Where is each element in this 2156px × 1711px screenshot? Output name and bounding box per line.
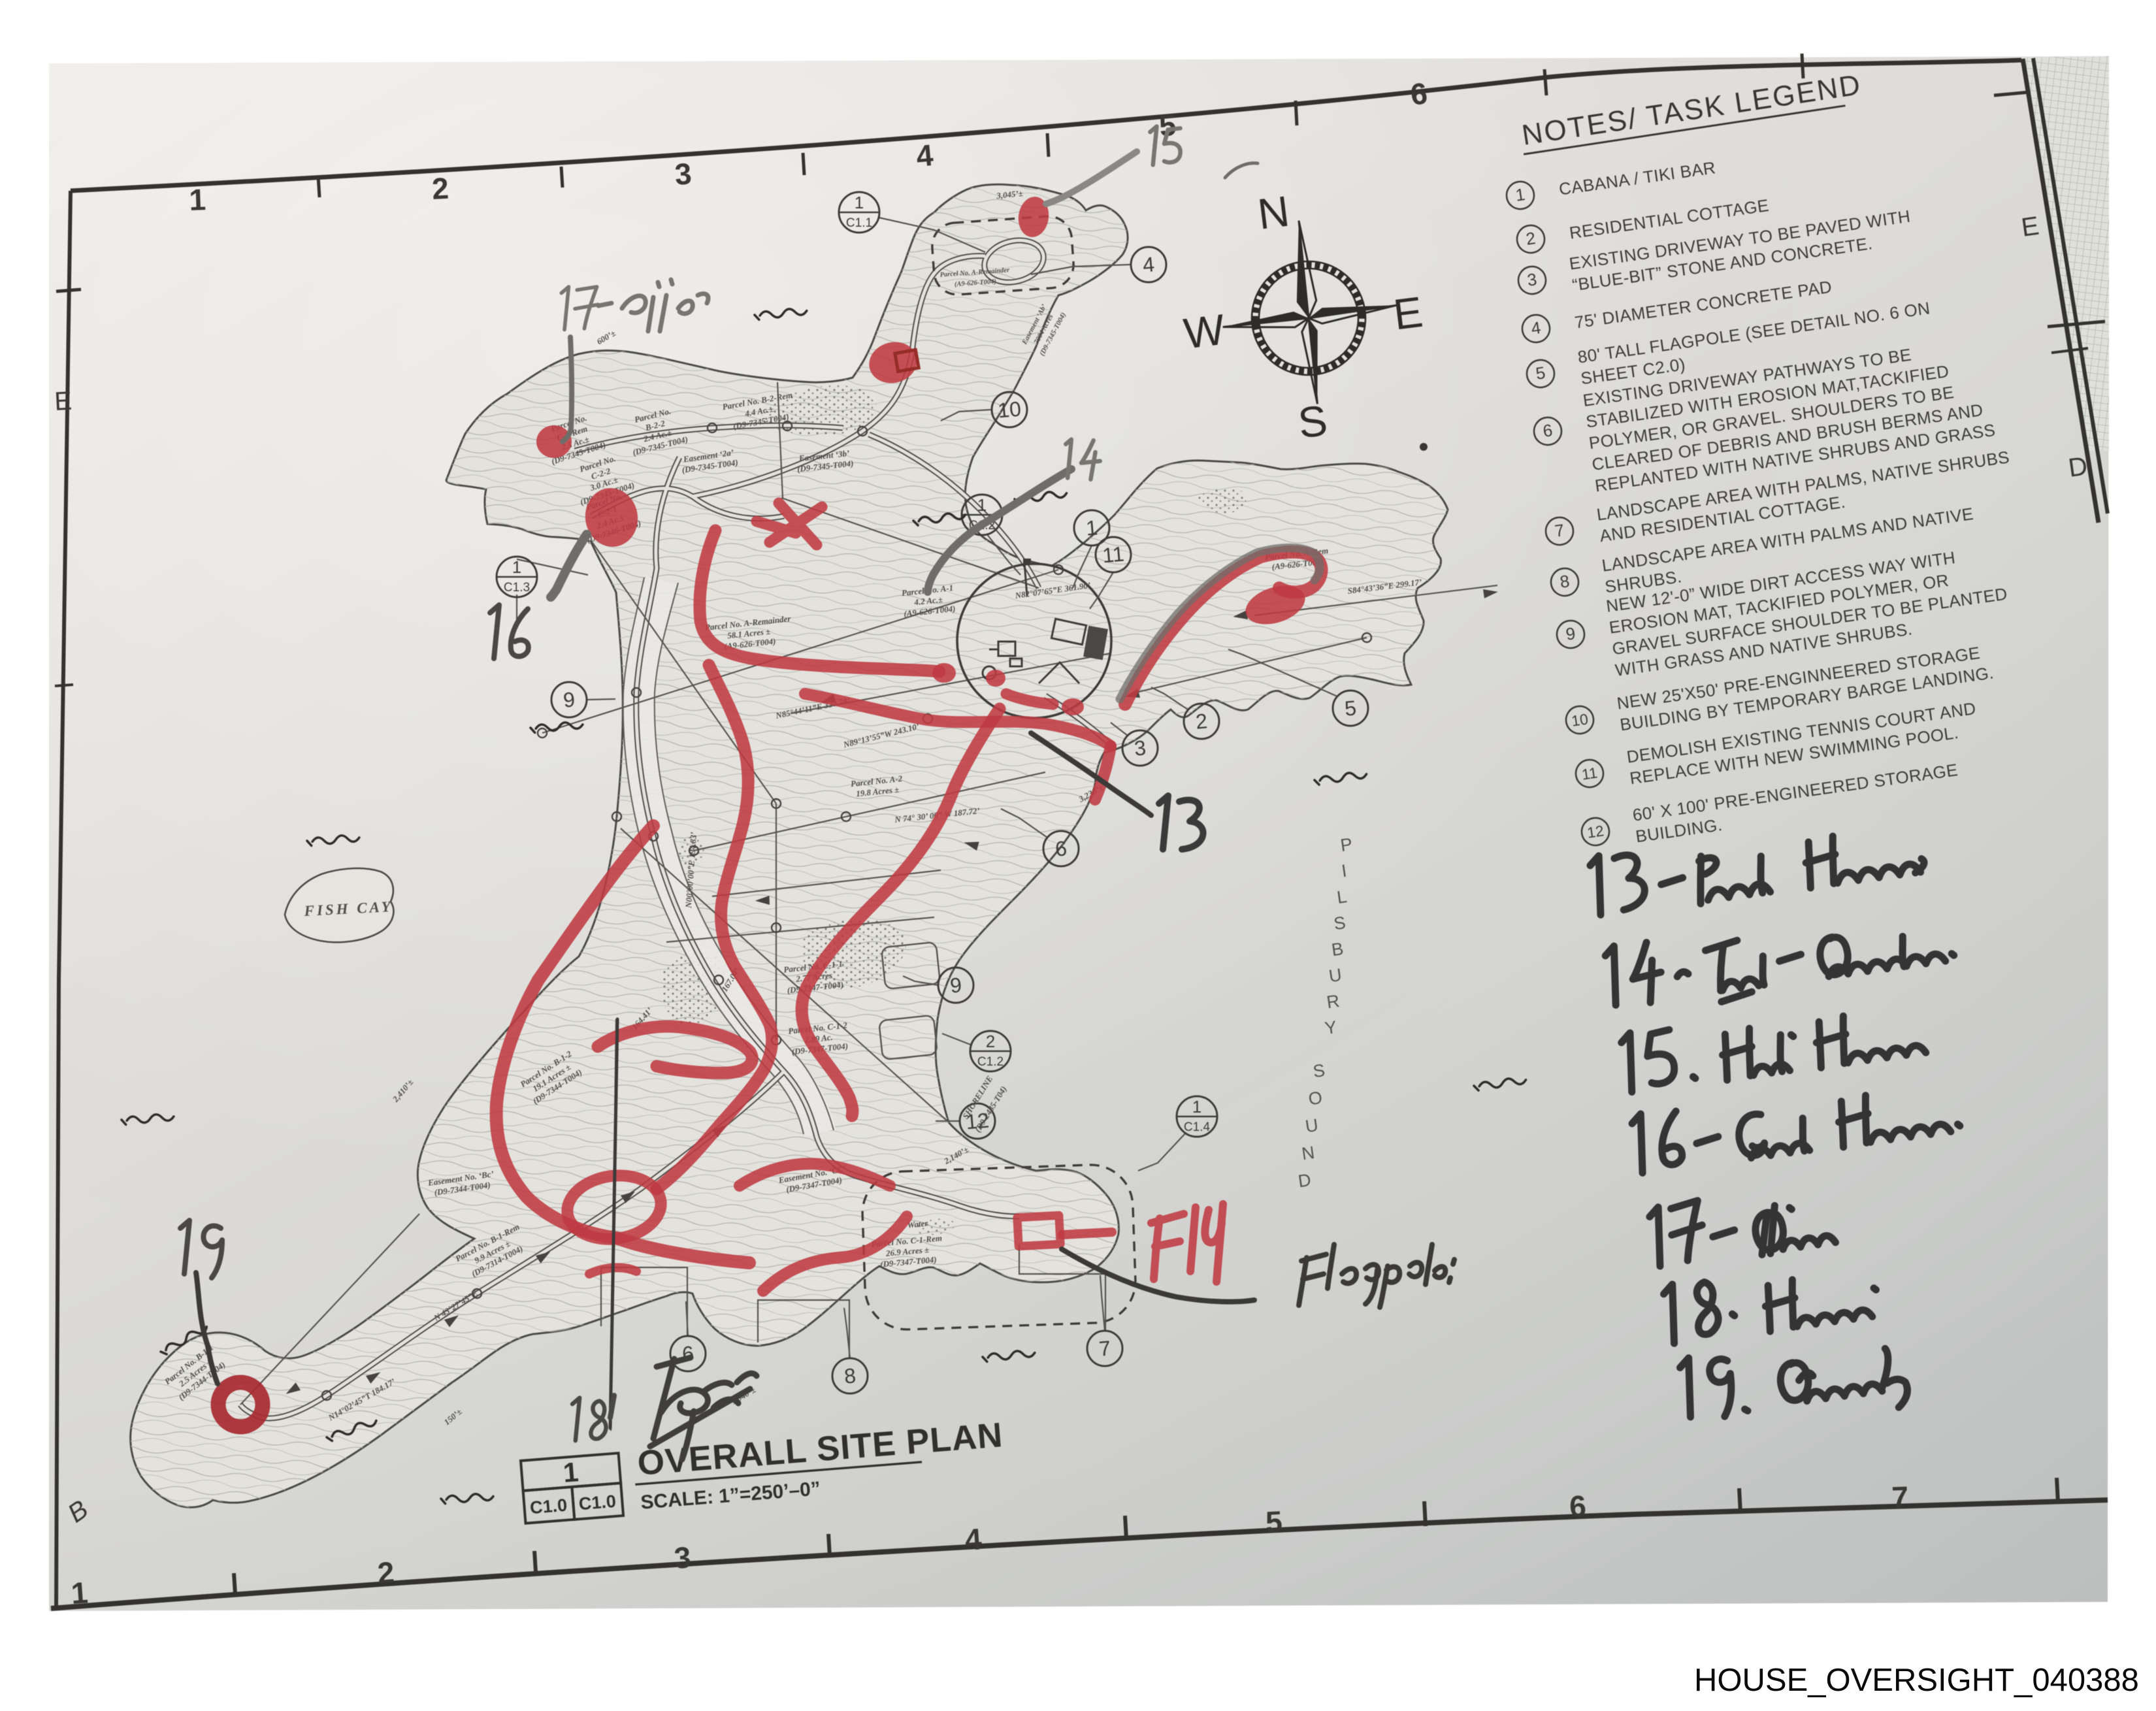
svg-text:12: 12 [1586,822,1605,841]
svg-text:E: E [54,387,73,416]
svg-text:4: 4 [915,138,934,173]
svg-text:5: 5 [1344,696,1358,720]
svg-text:1: 1 [855,193,864,212]
svg-text:1: 1 [70,1575,89,1610]
svg-text:4: 4 [1142,252,1156,276]
svg-text:1: 1 [562,1456,580,1488]
svg-text:7: 7 [1098,1336,1112,1360]
svg-text:1: 1 [512,557,521,577]
svg-text:2: 2 [376,1555,395,1590]
svg-text:W: W [1181,305,1228,358]
svg-text:10: 10 [997,397,1022,423]
svg-text:C1.2: C1.2 [977,1055,1004,1069]
svg-text:3: 3 [673,1540,692,1575]
svg-text:2: 2 [1195,709,1209,733]
svg-text:1: 1 [1085,515,1099,540]
svg-text:9: 9 [563,687,576,711]
svg-text:1: 1 [1192,1097,1201,1116]
svg-text:D: D [2066,451,2089,483]
svg-text:4: 4 [964,1522,983,1557]
svg-text:5: 5 [1265,1505,1283,1539]
svg-text:C1.0: C1.0 [578,1491,617,1514]
svg-text:6: 6 [1569,1489,1587,1524]
svg-text:11: 11 [1102,542,1125,568]
svg-text:R: R [1326,991,1341,1012]
svg-text:3: 3 [1134,736,1147,760]
svg-text:C1.1: C1.1 [846,216,872,230]
svg-text:1: 1 [977,495,987,515]
svg-text:U: U [1304,1115,1319,1136]
svg-text:D: D [1297,1170,1312,1191]
svg-text:6: 6 [1054,836,1068,860]
svg-text:C1.3: C1.3 [504,581,530,595]
svg-text:O: O [1307,1088,1324,1109]
svg-text:C1.4: C1.4 [1184,1120,1211,1134]
svg-text:S: S [1296,396,1330,448]
svg-text:1: 1 [189,182,206,217]
svg-text:3: 3 [674,156,693,191]
svg-text:U: U [1328,965,1343,986]
svg-text:7: 7 [1891,1480,1909,1514]
svg-text:10: 10 [1571,710,1590,729]
svg-text:8: 8 [843,1363,857,1388]
svg-text:2: 2 [986,1032,995,1051]
svg-text:C1.0: C1.0 [529,1495,568,1518]
svg-text:N: N [1301,1143,1316,1164]
svg-text:2: 2 [431,171,449,206]
svg-text:11: 11 [1580,764,1598,783]
svg-text:E: E [1391,287,1426,339]
svg-text:9: 9 [949,973,963,997]
svg-text:N: N [1255,187,1292,238]
